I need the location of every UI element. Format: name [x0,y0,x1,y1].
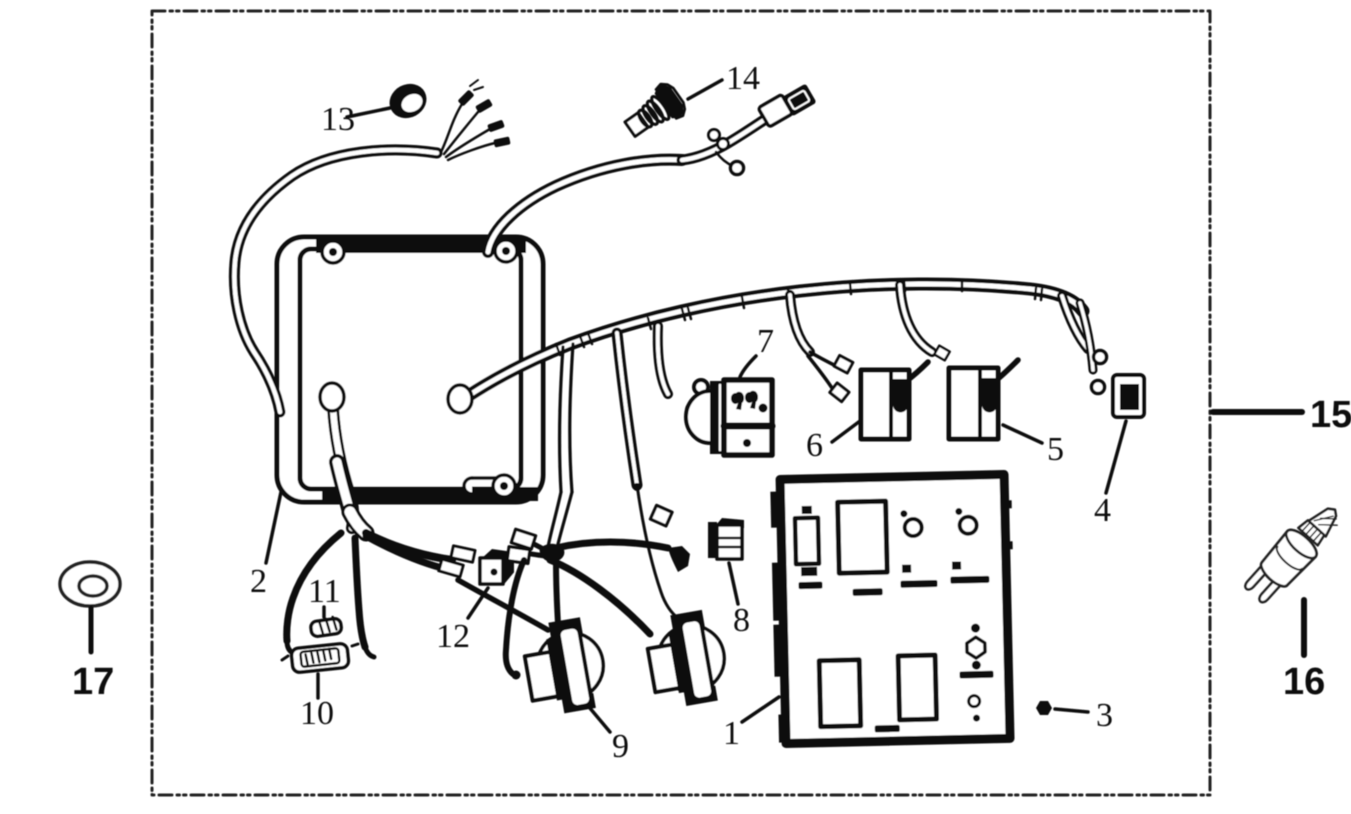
svg-text:7: 7 [757,323,774,360]
svg-text:5: 5 [1047,431,1064,468]
svg-text:17: 17 [72,661,114,703]
svg-text:1: 1 [723,715,740,752]
svg-text:6: 6 [806,427,823,464]
svg-text:8: 8 [733,602,750,639]
svg-text:10: 10 [300,695,334,732]
svg-text:11: 11 [308,573,341,610]
svg-text:12: 12 [436,618,470,655]
svg-text:2: 2 [250,563,267,600]
svg-text:4: 4 [1094,492,1111,529]
svg-text:3: 3 [1096,697,1113,734]
svg-text:13: 13 [321,101,355,138]
svg-text:16: 16 [1283,661,1325,703]
svg-text:9: 9 [612,728,629,765]
svg-text:14: 14 [726,60,760,97]
svg-text:15: 15 [1310,394,1351,436]
